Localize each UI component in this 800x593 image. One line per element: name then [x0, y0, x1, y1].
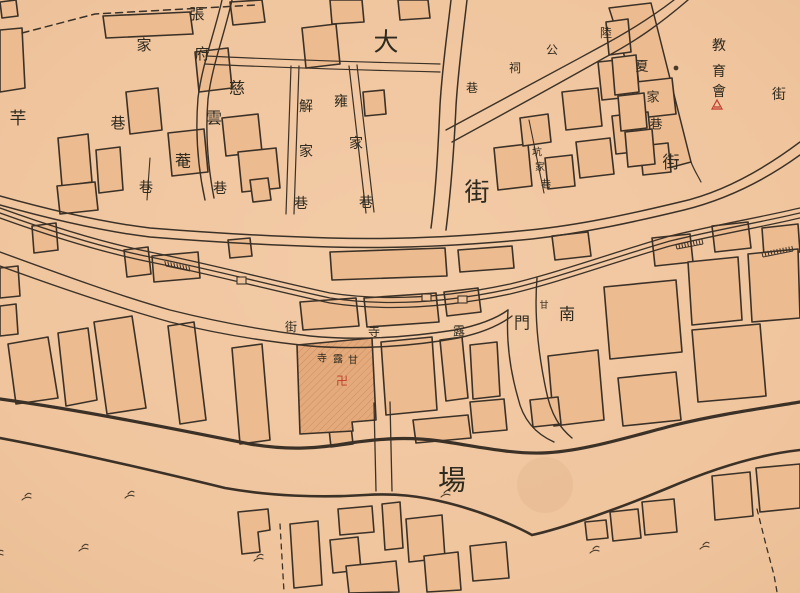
- map-label-jiao-yu-hui-char-1: 育: [712, 64, 726, 80]
- map-shape: [470, 542, 509, 581]
- map-shape: [330, 0, 364, 24]
- map-label-keng-jia-xiang-char-1: 家: [535, 161, 545, 174]
- map-shape: [0, 266, 20, 298]
- map-shape: [562, 88, 602, 130]
- map-shape: [382, 502, 403, 550]
- map-shape: [458, 246, 514, 272]
- map-label-ci-yun-an-char-2: 菴: [175, 152, 191, 171]
- map-shape: [330, 248, 447, 280]
- map-shape: [58, 134, 92, 186]
- map-shape: [618, 372, 681, 426]
- map-label-jie-jia-xiang-char-2: 巷: [294, 196, 308, 212]
- map-shape: [604, 280, 682, 359]
- map-shape: [470, 399, 507, 433]
- map-shape: [688, 257, 742, 325]
- map-label-nan-men-char-0: 南: [559, 305, 575, 324]
- map-shape: [618, 93, 647, 131]
- map-shape: [625, 129, 655, 167]
- creek-pier-0: [237, 277, 246, 284]
- map-shape: [96, 147, 123, 193]
- map-label-chang-char-0: 場: [438, 464, 466, 497]
- map-shape: [103, 12, 193, 38]
- map-label-yong-jia-xiang-char-1: 家: [349, 135, 363, 152]
- map-label-jia-xiang-char-0: 家: [136, 36, 151, 54]
- map-label-xia-jia-xiang-char-0: 夏: [635, 60, 648, 75]
- map-label-lu-gong-ci-xiang-char-1: 公: [546, 43, 558, 57]
- map-label-zhang-fu-char-1: 府: [194, 45, 209, 63]
- map-shape: [250, 178, 271, 202]
- map-shape: [470, 342, 500, 399]
- map-label-jie-jia-xiang-char-1: 家: [299, 143, 313, 160]
- map-label-gan-lu-si-jie-char-2: 寺: [368, 325, 380, 339]
- map-shape: [0, 0, 18, 18]
- map-label-lu-gong-ci-xiang-char-3: 巷: [466, 81, 478, 95]
- map-shape: [712, 472, 753, 520]
- map-label-yong-jia-xiang-char-0: 雍: [334, 94, 348, 110]
- map-label-gan-lu-si-char-0: 寺: [317, 353, 327, 365]
- map-shape: [424, 552, 461, 592]
- map-shape: [228, 238, 252, 258]
- map-label-xiang-b-char-0: 巷: [213, 181, 227, 197]
- map-shape: [346, 561, 399, 593]
- map-shape: [230, 0, 265, 25]
- map-label-gan-lu-si-char-2: 甘: [348, 354, 358, 367]
- map-label-zhang-fu-char-0: 張: [189, 5, 204, 23]
- map-label-gan-lu-si-jie-char-3: 街: [285, 320, 297, 334]
- creek-pier-1: [422, 294, 431, 301]
- map-shape: [32, 223, 58, 253]
- map-label-gan-lu-si-jie-char-1: 露: [453, 324, 465, 338]
- map-label-lu-gong-ci-xiang-char-0: 陸: [600, 26, 612, 40]
- map-shape: [576, 138, 614, 178]
- map-shape: [290, 521, 322, 588]
- map-label-jiao-yu-hui-char-0: 教: [712, 38, 726, 54]
- map-label-jie-right-char-0: 街: [772, 87, 786, 103]
- map-shape: [0, 304, 18, 336]
- map-label-xiang-a-char-0: 巷: [139, 180, 153, 196]
- map-shape: [642, 499, 677, 535]
- map-label-gan-lu-si-char-1: 露: [333, 354, 343, 366]
- map-label-da-jie-char-0: 大: [373, 28, 398, 57]
- map-label-yong-jia-xiang-char-2: 巷: [359, 195, 373, 211]
- map-shape: [756, 464, 800, 512]
- map-label-gan-lu-si-jie-char-0: 甘: [539, 299, 548, 311]
- map-label-nan-men-char-1: 門: [514, 314, 530, 333]
- map-label-jiao-yu-hui-char-2: 會: [712, 84, 726, 100]
- map-canvas[interactable]: 卍 張府慈雲菴巷巷家巷芉解家巷雍家巷大街陸公祠巷坑家巷夏家巷街教育會街南門甘露寺…: [0, 0, 800, 593]
- map-label-jie-wedge-char-0: 街: [663, 153, 680, 173]
- map-shape: [530, 397, 561, 427]
- map-label-qian-char-0: 芉: [10, 109, 27, 129]
- map-shape: [494, 144, 532, 190]
- map-shape: [0, 28, 25, 92]
- map-label-lu-gong-ci-xiang-char-2: 祠: [509, 61, 521, 75]
- map-shape: [338, 506, 374, 535]
- map-shape: [520, 114, 551, 146]
- map-shape: [398, 0, 430, 20]
- map-label-da-jie-char-1: 街: [464, 178, 489, 207]
- map-label-ci-yun-an-char-1: 雲: [206, 109, 222, 128]
- map-label-jie-jia-xiang-char-0: 解: [299, 99, 313, 115]
- map-shape: [610, 509, 641, 541]
- map-shape: [363, 90, 386, 116]
- map-shape: [126, 88, 162, 134]
- historical-city-map[interactable]: 卍 張府慈雲菴巷巷家巷芉解家巷雍家巷大街陸公祠巷坑家巷夏家巷街教育會街南門甘露寺…: [0, 0, 800, 593]
- paper-stain: [517, 457, 573, 513]
- map-label-ci-yun-an-char-0: 慈: [229, 79, 245, 98]
- map-shape: [748, 249, 800, 322]
- map-label-keng-jia-xiang-char-0: 坑: [532, 146, 542, 159]
- map-shape: [712, 222, 751, 252]
- map-label-jia-xiang-char-1: 巷: [110, 114, 125, 132]
- map-label-keng-jia-xiang-char-2: 巷: [541, 179, 551, 191]
- map-shape: [57, 182, 98, 214]
- map-shape: [692, 324, 766, 402]
- creek-pier-2: [458, 296, 467, 303]
- map-shape: [585, 520, 608, 540]
- map-label-xia-jia-xiang-char-2: 巷: [649, 118, 662, 133]
- map-label-xia-jia-xiang-char-1: 家: [646, 90, 659, 106]
- ink-blot: [674, 66, 679, 71]
- temple-swastika-icon: 卍: [336, 374, 348, 388]
